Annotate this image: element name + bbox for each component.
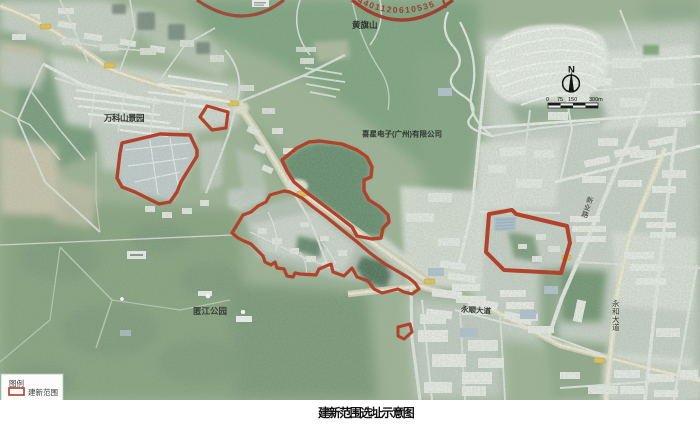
svg-text:75: 75	[557, 97, 563, 103]
svg-text:喜星电子(广州)有限公司: 喜星电子(广州)有限公司	[362, 129, 442, 139]
svg-text:永和大道: 永和大道	[612, 298, 620, 332]
svg-text:0: 0	[546, 97, 549, 103]
svg-text:150: 150	[568, 97, 577, 103]
svg-text:匿江公园: 匿江公园	[193, 306, 227, 316]
svg-text:万科山景园: 万科山景园	[103, 113, 144, 123]
svg-text:300m: 300m	[589, 97, 603, 103]
svg-text:图例: 图例	[9, 378, 24, 388]
svg-text:黄旗山: 黄旗山	[352, 20, 378, 30]
svg-text:建新范围: 建新范围	[28, 387, 58, 397]
svg-text:建新范围选址示意图: 建新范围选址示意图	[317, 405, 415, 420]
